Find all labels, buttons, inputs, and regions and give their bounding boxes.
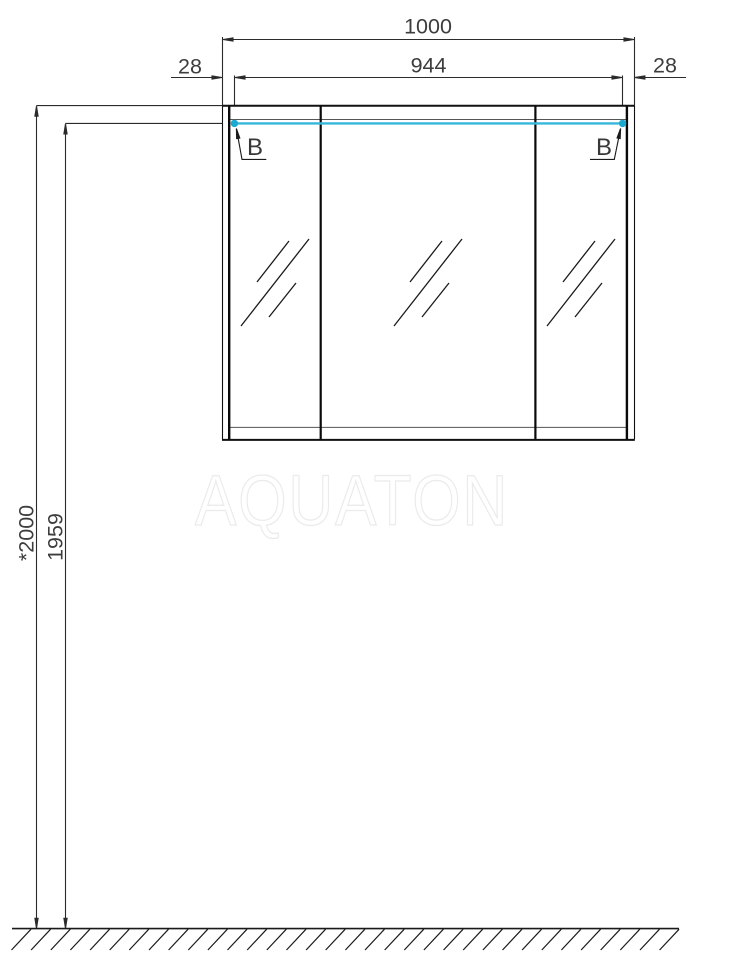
svg-text:28: 28 <box>653 54 677 78</box>
svg-text:1000: 1000 <box>404 15 452 39</box>
svg-text:B: B <box>247 134 263 161</box>
svg-text:AQUATON: AQUATON <box>195 462 509 541</box>
svg-text:B: B <box>596 134 612 161</box>
svg-text:28: 28 <box>178 55 202 79</box>
svg-text:1959: 1959 <box>44 513 68 561</box>
svg-text:944: 944 <box>411 54 447 78</box>
svg-text:*2000: *2000 <box>15 505 39 561</box>
